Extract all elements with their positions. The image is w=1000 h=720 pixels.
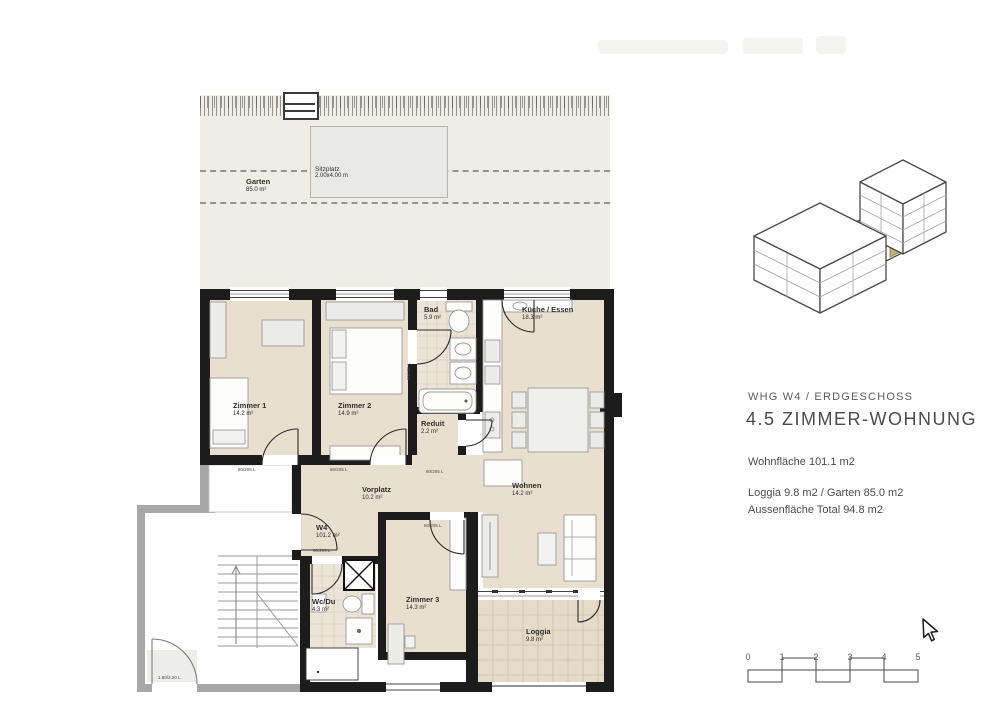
scale-tick: 2 (809, 652, 823, 662)
label-kueche: Küche / Essen 18.3 m² (522, 306, 573, 322)
unit-title: 4.5 ZIMMER-WOHNUNG (746, 409, 977, 430)
outdoor-total-text: Aussenfläche Total 94.8 m2 (748, 504, 883, 516)
label-reduit: Reduit 2.2 m² (421, 420, 444, 436)
door-size-label: 80/205 L (406, 362, 411, 380)
outdoor-area-text: Loggia 9.8 m2 / Garten 85.0 m2 (748, 487, 903, 499)
stairwell (137, 465, 300, 692)
living-area-text: Wohnfläche 101.1 m2 (748, 456, 855, 468)
scale-bar-labels: 0 1 2 3 4 5 (741, 652, 957, 664)
label-zimmer2: Zimmer 2 14.9 m² (338, 402, 371, 418)
label-wohnen: Wohnen 14.2 m² (512, 482, 541, 498)
label-wcdu: Wc/Du 4.3 m² (312, 598, 335, 614)
unit-subtitle: WHG W4 / ERDGESCHOSS (748, 391, 913, 403)
label-zimmer1: Zimmer 1 14.2 m² (233, 402, 266, 418)
label-loggia: Loggia 9.8 m² (526, 628, 551, 644)
door-size-label: 80/205 L (330, 467, 348, 472)
label-vorplatz: Vorplatz 10.2 m² (362, 486, 391, 502)
building-isometric-icon (754, 160, 946, 313)
scale-tick: 5 (911, 652, 925, 662)
label-w4: W4 101.2 m² (316, 524, 340, 540)
door-size-label: 1.80/2.20 L (158, 675, 181, 680)
label-sitzplatz: Sitzplatz 2.00x4.00 m (315, 166, 348, 180)
scale-tick: 3 (843, 652, 857, 662)
label-garten: Garten 85.0 m² (246, 178, 270, 194)
door-size-label: 60/205 L (313, 548, 331, 553)
floorplan-drawing (0, 0, 1000, 720)
door-size-label: 80/205 L (426, 469, 444, 474)
scale-tick: 1 (775, 652, 789, 662)
label-bad: Bad 5.9 m² (424, 306, 441, 322)
scale-tick: 4 (877, 652, 891, 662)
mouse-cursor-icon (923, 619, 938, 641)
label-zimmer3: Zimmer 3 14.3 m² (406, 596, 439, 612)
door-size-label: 80/205 L (424, 523, 442, 528)
door-size-label: 80/205 L (238, 467, 256, 472)
floorplan-page: { "garden": { "label": "Garten", "area":… (0, 0, 1000, 720)
scale-tick: 0 (741, 652, 755, 662)
